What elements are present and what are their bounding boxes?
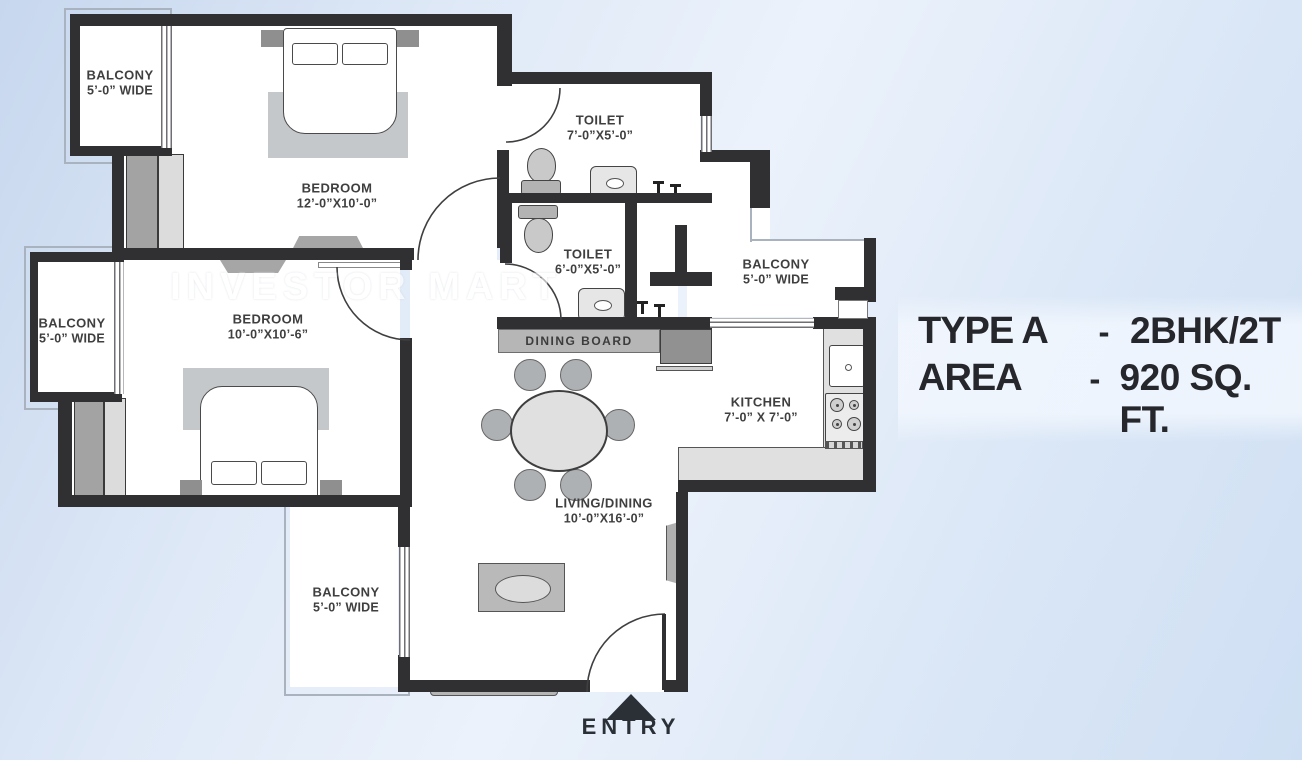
wall-segment [625,203,637,317]
watermark: INVESTOR MART [170,266,562,309]
wall-segment [864,238,876,302]
label-living-dining: LIVING/DINING 10’-0”X16’-0” [555,495,653,526]
wall-segment [676,492,688,692]
area-row: AREA - 920 SQ. FT. [918,357,1302,441]
wall-segment [676,317,712,329]
wall-segment [497,193,712,203]
wall-segment [30,252,38,402]
wall-segment [700,84,712,116]
type-value: 2BHK/2T [1130,310,1281,352]
wardrobe-icon [126,154,158,250]
pillow-icon [261,461,307,485]
pillow-icon [292,43,338,65]
label-balcony-left: BALCONY 5’-0” WIDE [38,315,105,346]
wall-segment [70,14,512,26]
parapet-window [838,300,868,319]
wall-segment [398,505,410,547]
wardrobe-icon [104,398,126,497]
double-bed-icon [200,386,318,500]
nightstand-icon [397,30,419,47]
wall-segment [678,480,876,492]
wardrobe-icon [158,154,184,250]
label-bedroom-top: BEDROOM 12’-0”X10’-0” [297,180,377,211]
wall-segment [863,329,876,492]
wall-segment [750,162,770,208]
balcony-slab-line [750,239,866,241]
balcony-slab-line [750,206,752,242]
dining-table-icon [510,390,608,472]
chair-icon [514,469,546,501]
type-label: TYPE A [918,310,1078,353]
wall-segment [70,22,80,154]
chair-icon [514,359,546,391]
window [161,26,172,148]
nightstand-icon [261,30,283,47]
type-row: TYPE A - 2BHK/2T [918,310,1281,353]
toilet-tank-icon [518,205,558,219]
wall-segment [58,392,72,507]
fridge-icon [660,329,712,364]
dining-board: DINING BOARD [498,329,660,353]
toilet-wc-icon [524,218,553,253]
chair-icon [481,409,513,441]
tap-icon [641,303,644,314]
label-balcony-bottom: BALCONY 5’-0” WIDE [312,584,379,615]
window [399,547,410,657]
dining-board-label: DINING BOARD [525,334,632,348]
sink-icon [829,345,865,387]
wall-segment [497,72,712,84]
wall-segment [398,680,590,692]
entry-label: ENTRY [582,714,681,740]
pillow-icon [342,43,388,65]
wall-segment [675,225,687,280]
wall-segment [112,150,124,260]
label-balcony-top-left: BALCONY 5’-0” WIDE [86,67,153,98]
area-label: AREA [918,357,1070,400]
wall-segment [497,317,679,329]
wall-segment [30,252,124,262]
double-bed-icon [283,28,397,134]
floor-plan-page: DINING BOARD BALCONY 5’-0” WIDE BEDROOM … [0,0,1302,760]
type-dash: - [1078,313,1130,351]
floor-plan: DINING BOARD BALCONY 5’-0” WIDE BEDROOM … [0,0,902,760]
toilet-wc-icon [527,148,556,183]
area-dash: - [1070,360,1119,398]
stove-knobs [825,441,863,449]
floor-area [497,86,512,150]
chair-icon [560,359,592,391]
label-balcony-right: BALCONY 5’-0” WIDE [742,256,809,287]
wall-segment [112,248,414,260]
wall-segment [497,150,509,248]
label-toilet-common: TOILET 6’-0”X5’-0” [555,246,621,277]
floor-area [750,208,770,241]
pillow-icon [211,461,257,485]
window [114,262,124,394]
wall-segment [58,495,412,507]
label-bedroom-left: BEDROOM 10’-0”X10’-6” [228,311,308,342]
area-value: 920 SQ. FT. [1120,357,1302,441]
label-toilet-attached: TOILET 7’-0”X5’-0” [567,112,633,143]
wardrobe-icon [74,398,104,497]
floor-area [588,678,664,692]
tap-icon [658,306,661,317]
shelf-line [656,366,713,371]
chair-icon [603,409,635,441]
window [710,318,814,328]
center-table-icon [478,563,565,612]
wall-segment [30,392,122,402]
label-kitchen: KITCHEN 7’-0” X 7’-0” [724,394,797,425]
stove-icon [825,393,865,443]
kitchen-counter [678,447,864,481]
window [701,116,712,152]
wall-segment [400,338,412,498]
wall-segment [70,146,172,156]
